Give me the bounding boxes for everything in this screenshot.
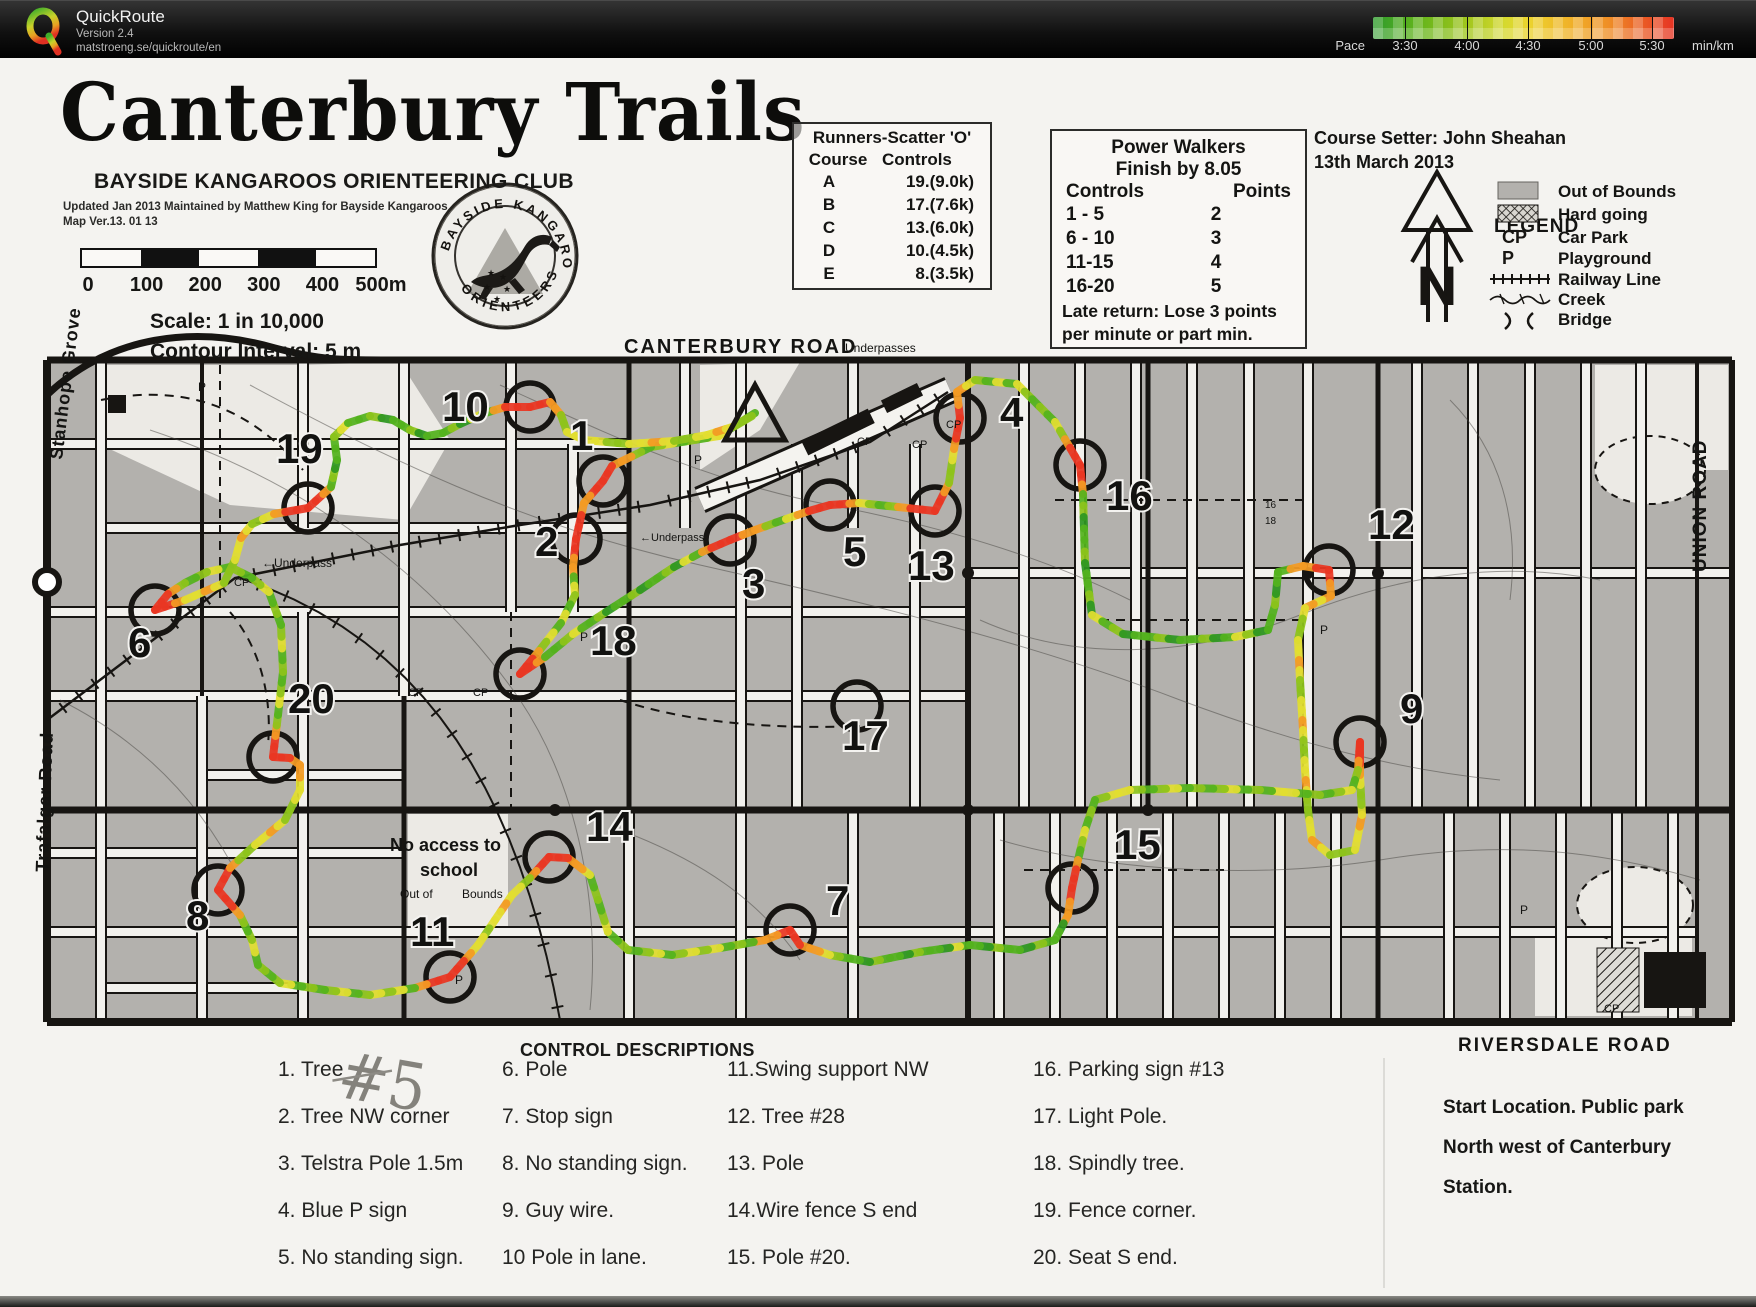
control-description-item: 18. Spindly tree. [1033, 1152, 1185, 1176]
control-description-item: 5. No standing sign. [278, 1246, 464, 1270]
club-name: BAYSIDE KANGAROOS ORIENTEERING CLUB [94, 170, 574, 194]
map-label: CP [857, 436, 872, 448]
walkers-row: 1 - 52 [1052, 203, 1305, 227]
map-label: CP [912, 439, 927, 451]
map-label: CP [473, 687, 488, 699]
course-date: 13th March 2013 [1314, 150, 1566, 174]
pace-gradient-bar[interactable] [1373, 17, 1674, 39]
map-label: P [694, 453, 702, 467]
control-number-19: 19 [276, 425, 323, 472]
map-label: Bounds [462, 887, 503, 901]
scale-number: 300 [234, 274, 294, 297]
course-setter-name: Course Setter: John Sheahan [1314, 126, 1566, 150]
control-description-item: 4. Blue P sign [278, 1199, 407, 1223]
map-label: school [420, 860, 478, 880]
control-description-item: 14.Wire fence S end [727, 1199, 917, 1223]
scale-bar [80, 248, 377, 268]
control-number-9: 9 [1400, 685, 1423, 732]
map-label: RIVERSDALE ROAD [1458, 1035, 1672, 1056]
control-description-item: 3. Telstra Pole 1.5m [278, 1152, 463, 1176]
walkers-box-title: Power Walkers [1052, 137, 1305, 159]
map-label: ←Underpass [640, 532, 705, 544]
walkers-col-controls: Controls [1066, 181, 1144, 203]
map-label: Out of [400, 887, 433, 901]
control-number-12: 12 [1368, 501, 1415, 548]
pace-tick-mark [1652, 17, 1653, 39]
pace-tick-label: 3:30 [1380, 38, 1430, 53]
control-number-2: 2 [535, 518, 558, 565]
map-label: P [1320, 623, 1328, 637]
control-description-item: 19. Fence corner. [1033, 1199, 1196, 1223]
runners-row: B17.(7.6k) [794, 193, 990, 216]
scale-number: 100 [117, 274, 177, 297]
map-label: P [1520, 903, 1528, 917]
svg-text:★: ★ [499, 272, 507, 282]
late-return-note-2: per minute or part min. [1052, 322, 1305, 345]
map-label: CANTERBURY ROAD [624, 336, 857, 358]
control-description-item: 15. Pole #20. [727, 1246, 851, 1270]
control-number-17: 17 [842, 712, 889, 759]
control-number-4: 4 [1000, 389, 1024, 436]
map-label: CP [408, 687, 423, 699]
map-label: 16 [1265, 500, 1277, 511]
scanned-map-paper: 1234567891011121314151617181920CANTERBUR… [0, 58, 1756, 1307]
quickroute-logo-icon [24, 6, 64, 56]
control-description-item: 13. Pole [727, 1152, 804, 1176]
paper-crease [1383, 1058, 1385, 1288]
map-label: Underpasses [845, 341, 916, 355]
runners-box-title: Runners-Scatter 'O' [794, 128, 990, 148]
map-label: P [580, 630, 588, 644]
map-label: ←Underpass [262, 556, 332, 570]
start-location-line: Start Location. Public park [1443, 1088, 1684, 1128]
app-url: matstroeng.se/quickroute/en [76, 42, 221, 54]
map-label: P [455, 973, 463, 987]
start-location-line: Station. [1443, 1168, 1684, 1208]
map-label: CP [1604, 1003, 1619, 1015]
control-number-11: 11 [410, 908, 454, 955]
control-description-item: 17. Light Pole. [1033, 1105, 1167, 1129]
control-description-item: 11.Swing support NW [727, 1058, 929, 1082]
power-walkers-box: Power Walkers Finish by 8.05 ControlsPoi… [1050, 129, 1307, 349]
start-location-line: North west of Canterbury [1443, 1128, 1684, 1168]
walkers-row: 11-154 [1052, 251, 1305, 275]
runners-row: D10.(4.5k) [794, 239, 990, 262]
pace-tick-mark [1591, 17, 1592, 39]
walkers-col-points: Points [1233, 181, 1291, 203]
map-label: CP [234, 577, 249, 589]
map-label: 18 [1265, 516, 1277, 527]
scale-number: 500m [351, 274, 411, 297]
control-description-item: 16. Parking sign #13 [1033, 1058, 1224, 1082]
svg-text:★: ★ [483, 282, 491, 292]
scale-number: 200 [175, 274, 235, 297]
runners-row: E8.(3.5k) [794, 262, 990, 285]
control-number-18: 18 [590, 617, 637, 664]
pace-unit-label: min/km [1692, 38, 1734, 53]
contour-text: Contour Interval: 5 m [150, 340, 361, 364]
control-description-item: 10 Pole in lane. [502, 1246, 647, 1270]
walkers-row: 16-205 [1052, 275, 1305, 299]
course-setter: Course Setter: John Sheahan 13th March 2… [1314, 126, 1566, 174]
app-title: QuickRoute [76, 7, 165, 27]
control-number-14: 14 [586, 803, 633, 850]
control-number-7: 7 [826, 877, 849, 924]
runners-scatter-box: Runners-Scatter 'O' CourseControls A19.(… [792, 122, 992, 290]
control-number-20: 20 [288, 675, 335, 722]
pace-tick-label: 5:30 [1627, 38, 1677, 53]
control-number-10: 10 [442, 383, 489, 430]
runners-col-controls: Controls [882, 150, 952, 170]
map-title: Canterbury Trails [60, 67, 806, 160]
control-number-15: 15 [1114, 821, 1161, 868]
control-description-item: 20. Seat S end. [1033, 1246, 1178, 1270]
app-version: Version 2.4 [76, 28, 134, 40]
walkers-row: 6 - 103 [1052, 227, 1305, 251]
pace-tick-label: 4:30 [1503, 38, 1553, 53]
updated-note: Updated Jan 2013 Maintained by Matthew K… [63, 201, 448, 213]
control-number-8: 8 [186, 892, 209, 939]
handwritten-note: #5 [332, 1038, 432, 1127]
late-return-note-1: Late return: Lose 3 points [1052, 299, 1305, 322]
control-description-item: 12. Tree #28 [727, 1105, 845, 1129]
map-label: P [198, 380, 206, 394]
control-number-3: 3 [742, 560, 765, 607]
pace-label: Pace [1305, 38, 1365, 53]
control-number-5: 5 [843, 528, 866, 575]
control-description-item: 7. Stop sign [502, 1105, 613, 1129]
control-description-item: 6. Pole [502, 1058, 567, 1082]
legend-title: LEGEND [1494, 216, 1579, 238]
pace-tick-mark [1467, 17, 1468, 39]
walkers-box-subtitle: Finish by 8.05 [1052, 159, 1305, 181]
scale-number: 0 [58, 274, 118, 297]
control-description-item: 9. Guy wire. [502, 1199, 614, 1223]
svg-text:★: ★ [503, 284, 511, 294]
runners-row: C13.(6.0k) [794, 216, 990, 239]
pace-tick-mark [1405, 17, 1406, 39]
control-number-13: 13 [908, 542, 955, 589]
control-number-6: 6 [128, 619, 151, 666]
runners-row: A19.(9.0k) [794, 170, 990, 193]
control-number-1: 1 [570, 412, 593, 459]
control-number-16: 16 [1106, 472, 1153, 519]
map-label: UNION ROAD [1690, 440, 1711, 572]
map-label: No access to [390, 835, 501, 855]
map-label: CP [946, 419, 961, 431]
pace-tick-label: 4:00 [1442, 38, 1492, 53]
club-badge-logo: ★★★★★BAYSIDE KANGAROOSORIENTEERS [433, 184, 577, 328]
quickroute-header: QuickRoute Version 2.4 matstroeng.se/qui… [0, 0, 1756, 59]
pace-tick-label: 5:00 [1566, 38, 1616, 53]
start-location-text: Start Location. Public parkNorth west of… [1443, 1088, 1684, 1208]
scale-text: Scale: 1 in 10,000 [150, 310, 324, 334]
map-version: Map Ver.13. 01 13 [63, 216, 158, 228]
control-description-item: 8. No standing sign. [502, 1152, 688, 1176]
pace-tick-mark [1528, 17, 1529, 39]
scale-number: 400 [292, 274, 352, 297]
svg-text:★: ★ [487, 268, 495, 278]
runners-col-course: Course [794, 150, 882, 170]
